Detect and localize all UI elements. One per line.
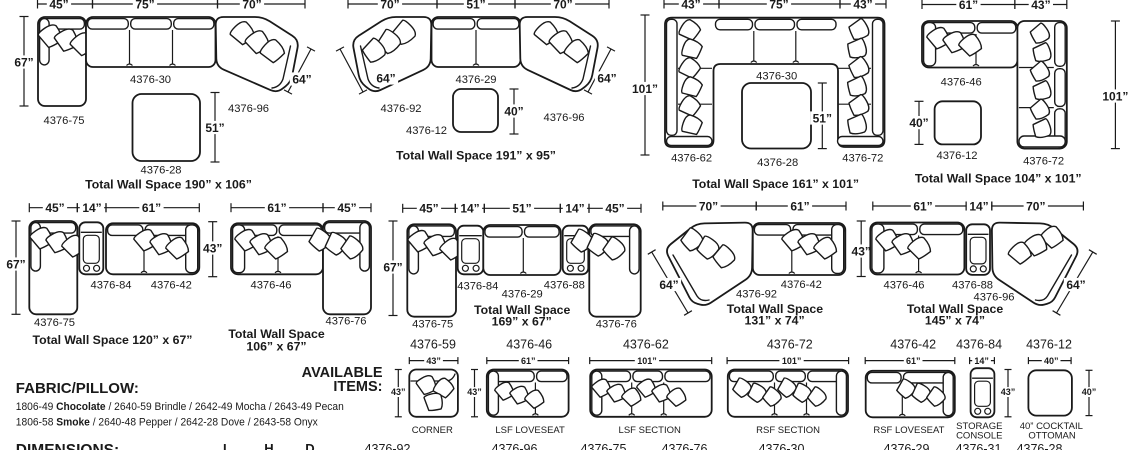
svg-text:4376-46: 4376-46 xyxy=(250,280,291,292)
svg-text:61”: 61” xyxy=(913,199,932,213)
svg-text:101”: 101” xyxy=(782,356,802,366)
svg-text:1806-58 Smoke / 2640-48 Pepper: 1806-58 Smoke / 2640-48 Pepper / 2642-28… xyxy=(16,417,318,429)
svg-text:106” x 67”: 106” x 67” xyxy=(246,340,306,354)
svg-text:4376-75: 4376-75 xyxy=(43,115,84,127)
svg-text:DIMENSIONS:: DIMENSIONS: xyxy=(16,442,119,450)
svg-text:14”: 14” xyxy=(82,201,101,215)
svg-text:Total Wall Space 104” x 101”: Total Wall Space 104” x 101” xyxy=(915,172,1082,186)
svg-text:4376-42: 4376-42 xyxy=(781,279,822,291)
svg-text:4376-92: 4376-92 xyxy=(380,103,421,115)
svg-text:61”: 61” xyxy=(142,201,161,215)
svg-text:RSF SECTION: RSF SECTION xyxy=(756,425,820,436)
svg-text:169” x 67”: 169” x 67” xyxy=(492,315,552,329)
svg-text:43”: 43” xyxy=(1031,0,1050,12)
svg-text:45”: 45” xyxy=(605,202,624,216)
svg-text:14”: 14” xyxy=(460,202,479,216)
svg-text:4376-76: 4376-76 xyxy=(325,316,366,328)
svg-text:43”: 43” xyxy=(852,244,871,258)
svg-text:OTTOMAN: OTTOMAN xyxy=(1028,431,1075,442)
svg-text:4376-62: 4376-62 xyxy=(671,153,712,165)
svg-text:40”: 40” xyxy=(909,116,928,130)
svg-text:4376-28: 4376-28 xyxy=(757,157,798,169)
svg-text:4376-96: 4376-96 xyxy=(228,103,269,115)
svg-text:101”: 101” xyxy=(632,82,658,96)
svg-text:40”: 40” xyxy=(1082,387,1097,397)
svg-text:4376-59: 4376-59 xyxy=(410,338,456,352)
svg-text:4376-29: 4376-29 xyxy=(884,442,930,450)
svg-text:4376-46: 4376-46 xyxy=(506,338,552,352)
svg-text:64”: 64” xyxy=(659,278,678,292)
svg-text:4376-92: 4376-92 xyxy=(736,289,777,301)
svg-text:4376-31: 4376-31 xyxy=(956,442,1002,450)
svg-text:14”: 14” xyxy=(969,199,988,213)
svg-text:70”: 70” xyxy=(242,0,261,11)
svg-text:CONSOLE: CONSOLE xyxy=(956,431,1002,442)
svg-text:51”: 51” xyxy=(205,121,224,135)
svg-text:4376-12: 4376-12 xyxy=(406,125,447,137)
svg-text:4376-72: 4376-72 xyxy=(767,338,813,352)
svg-text:51”: 51” xyxy=(813,111,832,125)
svg-text:4376-88: 4376-88 xyxy=(952,280,993,292)
svg-text:145” x 74”: 145” x 74” xyxy=(925,314,985,328)
svg-text:RSF LOVESEAT: RSF LOVESEAT xyxy=(873,425,944,436)
svg-text:4376-29: 4376-29 xyxy=(502,289,543,301)
svg-text:4376-72: 4376-72 xyxy=(1023,156,1064,168)
svg-text:LSF LOVESEAT: LSF LOVESEAT xyxy=(495,425,565,436)
svg-text:4376-75: 4376-75 xyxy=(581,442,627,450)
svg-text:43”: 43” xyxy=(467,387,482,397)
svg-text:51”: 51” xyxy=(512,202,531,216)
svg-text:67”: 67” xyxy=(383,260,402,274)
svg-text:43”: 43” xyxy=(853,0,872,11)
svg-text:131” x 74”: 131” x 74” xyxy=(745,314,805,328)
svg-text:Total Wall Space 191” x 95”: Total Wall Space 191” x 95” xyxy=(396,149,556,163)
svg-text:4376-46: 4376-46 xyxy=(883,280,924,292)
svg-text:4376-29: 4376-29 xyxy=(455,74,496,86)
svg-text:70”: 70” xyxy=(1026,199,1045,213)
svg-text:45”: 45” xyxy=(419,202,438,216)
svg-text:75”: 75” xyxy=(769,0,788,11)
svg-text:67”: 67” xyxy=(6,257,25,271)
svg-text:61”: 61” xyxy=(906,356,921,366)
svg-text:14”: 14” xyxy=(974,356,989,366)
svg-text:61”: 61” xyxy=(959,0,978,12)
svg-text:61”: 61” xyxy=(267,201,286,215)
svg-text:1806-49 Chocolate / 2640-59 Br: 1806-49 Chocolate / 2640-59 Brindle / 26… xyxy=(16,401,344,413)
svg-text:FABRIC/PILLOW:: FABRIC/PILLOW: xyxy=(16,380,139,397)
svg-text:43”: 43” xyxy=(391,387,406,397)
svg-text:4376-46: 4376-46 xyxy=(941,77,982,89)
svg-text:4376-30: 4376-30 xyxy=(130,74,171,86)
svg-text:70”: 70” xyxy=(380,0,399,11)
svg-text:64”: 64” xyxy=(1066,278,1085,292)
svg-text:61”: 61” xyxy=(521,356,536,366)
svg-text:4376-30: 4376-30 xyxy=(756,71,797,83)
svg-text:64”: 64” xyxy=(376,71,395,85)
svg-text:4376-12: 4376-12 xyxy=(936,150,977,162)
svg-text:4376-30: 4376-30 xyxy=(759,442,805,450)
svg-text:4376-88: 4376-88 xyxy=(544,280,585,292)
svg-text:51”: 51” xyxy=(466,0,485,11)
svg-text:4376-12: 4376-12 xyxy=(1026,338,1072,352)
svg-text:4376-84: 4376-84 xyxy=(90,280,131,292)
svg-text:64”: 64” xyxy=(597,71,616,85)
svg-text:Total Wall Space 120” x 67”: Total Wall Space 120” x 67” xyxy=(33,333,193,347)
svg-text:70”: 70” xyxy=(699,199,718,213)
svg-text:70”: 70” xyxy=(553,0,572,11)
svg-text:40”: 40” xyxy=(504,104,523,118)
svg-text:4376-75: 4376-75 xyxy=(412,319,453,331)
svg-text:40”: 40” xyxy=(1044,356,1059,366)
svg-text:4376-28: 4376-28 xyxy=(1017,442,1063,450)
svg-text:64”: 64” xyxy=(292,72,311,86)
svg-text:4376-72: 4376-72 xyxy=(842,153,883,165)
svg-text:CORNER: CORNER xyxy=(412,425,453,436)
svg-text:43”: 43” xyxy=(681,0,700,11)
svg-text:4376-84: 4376-84 xyxy=(956,338,1002,352)
svg-text:43”: 43” xyxy=(426,356,441,366)
svg-text:61”: 61” xyxy=(790,199,809,213)
svg-text:43”: 43” xyxy=(1001,387,1016,397)
svg-text:Total Wall Space 190” x 106”: Total Wall Space 190” x 106” xyxy=(85,178,252,192)
svg-text:14”: 14” xyxy=(565,202,584,216)
svg-text:4376-84: 4376-84 xyxy=(457,281,498,293)
svg-text:45”: 45” xyxy=(337,201,356,215)
svg-text:101”: 101” xyxy=(637,356,657,366)
svg-text:LSF SECTION: LSF SECTION xyxy=(619,425,681,436)
svg-text:4376-75: 4376-75 xyxy=(34,317,75,329)
svg-text:4376-42: 4376-42 xyxy=(890,338,936,352)
svg-text:4376-96: 4376-96 xyxy=(492,442,538,450)
svg-text:4376-76: 4376-76 xyxy=(596,319,637,331)
svg-text:4376-62: 4376-62 xyxy=(623,338,669,352)
svg-text:4376-42: 4376-42 xyxy=(151,280,192,292)
svg-text:4376-76: 4376-76 xyxy=(662,442,708,450)
svg-text:4376-96: 4376-96 xyxy=(543,112,584,124)
svg-text:4376-92: 4376-92 xyxy=(365,442,411,450)
svg-text:45”: 45” xyxy=(49,0,68,11)
svg-text:D: D xyxy=(305,441,314,450)
svg-text:43”: 43” xyxy=(203,241,222,255)
svg-text:ITEMS:: ITEMS: xyxy=(333,379,382,395)
svg-text:101”: 101” xyxy=(1102,89,1128,103)
svg-text:75”: 75” xyxy=(135,0,154,11)
svg-text:67”: 67” xyxy=(14,55,33,69)
svg-text:L: L xyxy=(223,441,231,450)
svg-text:Total Wall Space 161” x 101”: Total Wall Space 161” x 101” xyxy=(692,177,859,191)
svg-text:4376-28: 4376-28 xyxy=(140,165,181,177)
svg-text:45”: 45” xyxy=(45,201,64,215)
svg-text:H: H xyxy=(264,441,273,450)
